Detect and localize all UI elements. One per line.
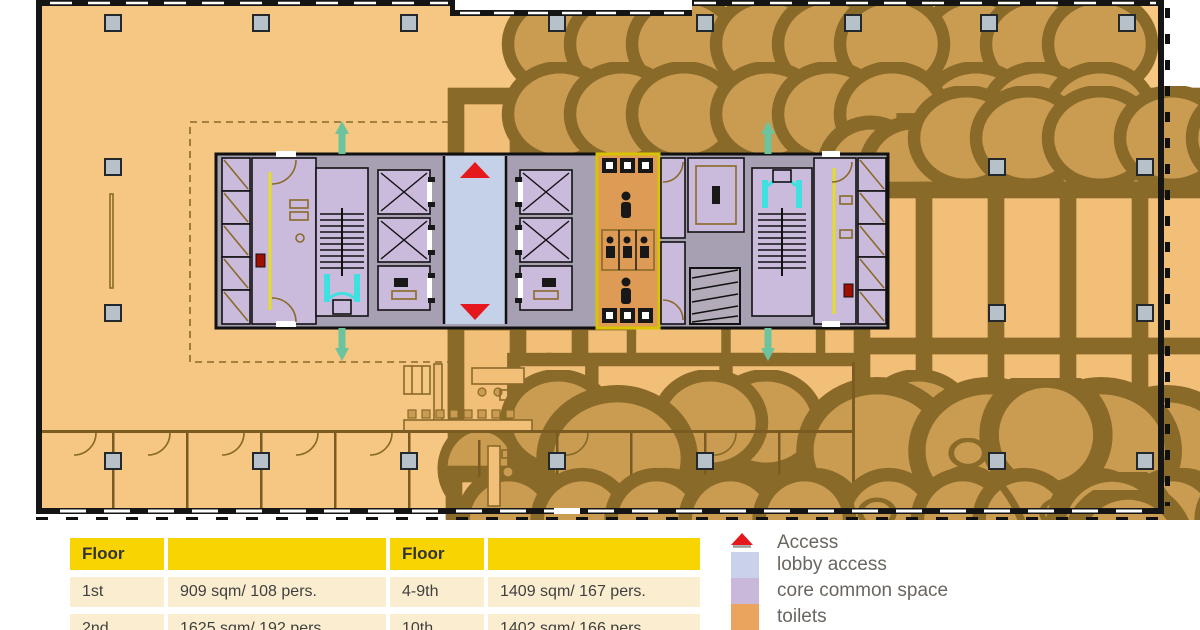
core-cells-right xyxy=(858,158,886,324)
table-header-cell xyxy=(168,538,386,570)
bar-counter xyxy=(404,420,532,431)
exit-door-marker xyxy=(762,180,768,208)
table-cell-floor: 2nd xyxy=(70,614,164,630)
corridor-wall xyxy=(38,430,854,433)
table-cell-area: 909 sqm/ 108 pers. xyxy=(168,577,386,607)
top-notch xyxy=(450,0,692,10)
table-cell-floor: 10th xyxy=(390,614,484,630)
legend-swatch-lobby-access xyxy=(731,552,759,578)
elevator-bank-east xyxy=(515,170,572,310)
stairwell-east xyxy=(752,168,812,316)
legend-label-lobby-access: lobby access xyxy=(773,554,1047,576)
stairwell-west xyxy=(316,168,368,316)
floor-occupancy-table: Floor Floor 1st 909 sqm/ 108 pers. 4-9th… xyxy=(70,538,698,630)
pc-desk xyxy=(488,446,500,506)
building-core xyxy=(216,151,888,328)
table-cell-area: 1625 sqm/ 192 pers. xyxy=(168,614,386,630)
legend: Access lobby access core common space to… xyxy=(727,528,1047,630)
floor-plan xyxy=(0,0,1200,520)
core-cells-left xyxy=(222,158,250,324)
elevator-bank-west xyxy=(378,170,435,310)
reception-desk xyxy=(472,368,524,384)
table-cell-area: 1402 sqm/ 166 pers. xyxy=(488,614,700,630)
table-header-cell xyxy=(488,538,700,570)
service-box xyxy=(256,254,265,267)
lobby-access-strip xyxy=(444,156,506,324)
table-cell-floor: 1st xyxy=(70,577,164,607)
toilets-area xyxy=(597,154,659,328)
exit-door-marker xyxy=(324,274,330,302)
column xyxy=(105,15,121,31)
table-header-cell: Floor xyxy=(390,538,484,570)
core-room-right xyxy=(814,151,856,327)
legend-label-core-common-space: core common space xyxy=(773,580,1047,602)
service-box xyxy=(844,284,853,297)
table-header-cell: Floor xyxy=(70,538,164,570)
person-icon xyxy=(622,278,631,287)
legend-swatch-toilets xyxy=(731,604,759,630)
core-room-left xyxy=(252,151,316,327)
legend-label-toilets: toilets xyxy=(773,606,1047,628)
person-icon xyxy=(622,192,631,201)
table-cell-area: 1409 sqm/ 167 pers. xyxy=(488,577,700,607)
legend-label-access: Access xyxy=(773,532,1047,554)
legend-swatch-core-common-space xyxy=(731,578,759,604)
table-cell-floor: 4-9th xyxy=(390,577,484,607)
page: Floor Floor 1st 909 sqm/ 108 pers. 4-9th… xyxy=(0,0,1200,630)
